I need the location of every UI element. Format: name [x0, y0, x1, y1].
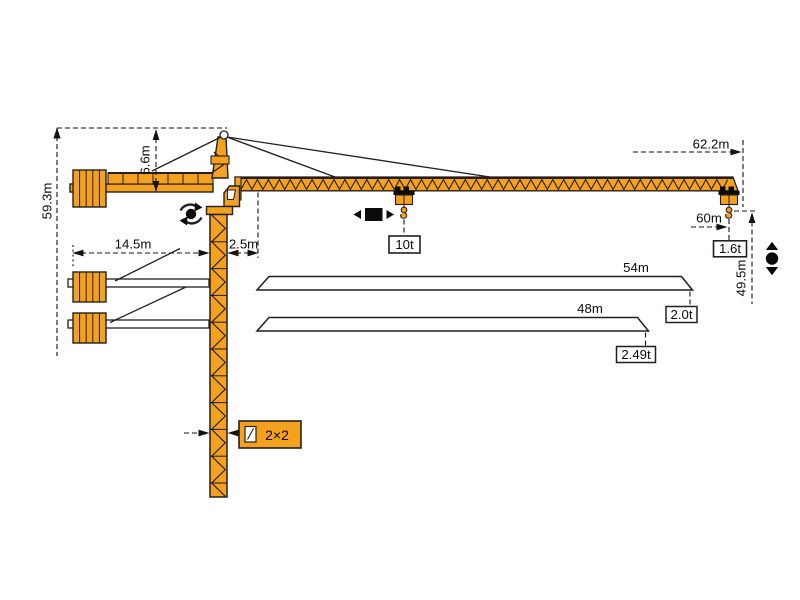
trolley-hook-mid: [394, 187, 415, 219]
mid-load-label: 10t: [395, 237, 414, 252]
hook: [401, 213, 407, 219]
pendant-counterjib: [152, 137, 221, 171]
counterweight-option-1: [68, 249, 209, 303]
tip-load-54m: 2.0t: [671, 307, 693, 322]
counter-jib-railing: [108, 173, 213, 184]
counterweight-block: [73, 272, 106, 302]
rear-offset-label: 2.5m: [229, 237, 258, 252]
jib-option-48m: 48m 2.49t: [257, 301, 656, 363]
jib-outline-54m: [257, 277, 693, 291]
counterweight-block: [73, 313, 106, 343]
jib-48m-label: 48m: [577, 301, 603, 316]
jib: [235, 177, 738, 200]
mast-section-callout: 2×2: [239, 421, 301, 448]
trolley-travel-icon: [354, 208, 395, 221]
head-height-label: 6.6m: [138, 145, 153, 174]
max-radius-label: 60m: [696, 211, 722, 226]
tower-crane-dimension-diagram: 54m 2.0t 48m 2.49t: [0, 0, 800, 600]
pendant-jib-1: [227, 137, 335, 177]
slewing-icon: [180, 203, 203, 226]
tip-load-callout: 1.6t: [714, 241, 747, 257]
diagram-canvas: 54m 2.0t 48m 2.49t: [0, 0, 800, 600]
jib-body: [235, 177, 738, 191]
pendant-jib-2: [227, 137, 490, 177]
mast-section-label: 2×2: [265, 427, 289, 443]
counterjib-radius-label: 14.5m: [115, 237, 152, 252]
cab-window: [228, 190, 236, 200]
jib-option-54m: 54m 2.0t: [257, 260, 697, 323]
apex-pulley: [220, 131, 228, 139]
counterweight-block: [73, 170, 106, 207]
tip-load-48m: 2.49t: [621, 347, 651, 362]
operator-cab: [224, 186, 240, 207]
total-height-label: 59.3m: [40, 183, 55, 220]
tip-load-label: 1.6t: [719, 241, 741, 256]
trolley-frame: [394, 191, 415, 195]
turntable: [207, 207, 233, 215]
pendant-lines: [152, 137, 490, 177]
hook-height-label: 49.5m: [734, 260, 749, 297]
jib-outline-48m: [257, 318, 649, 332]
jib-54m-label: 54m: [623, 260, 649, 275]
tower-mast: [210, 215, 227, 498]
mid-load-callout: 10t: [389, 236, 420, 253]
jib-overall-label: 62.2m: [693, 137, 730, 152]
leader-line: [110, 287, 186, 323]
hook-block: [401, 207, 407, 213]
hoist-icon: [766, 242, 778, 275]
